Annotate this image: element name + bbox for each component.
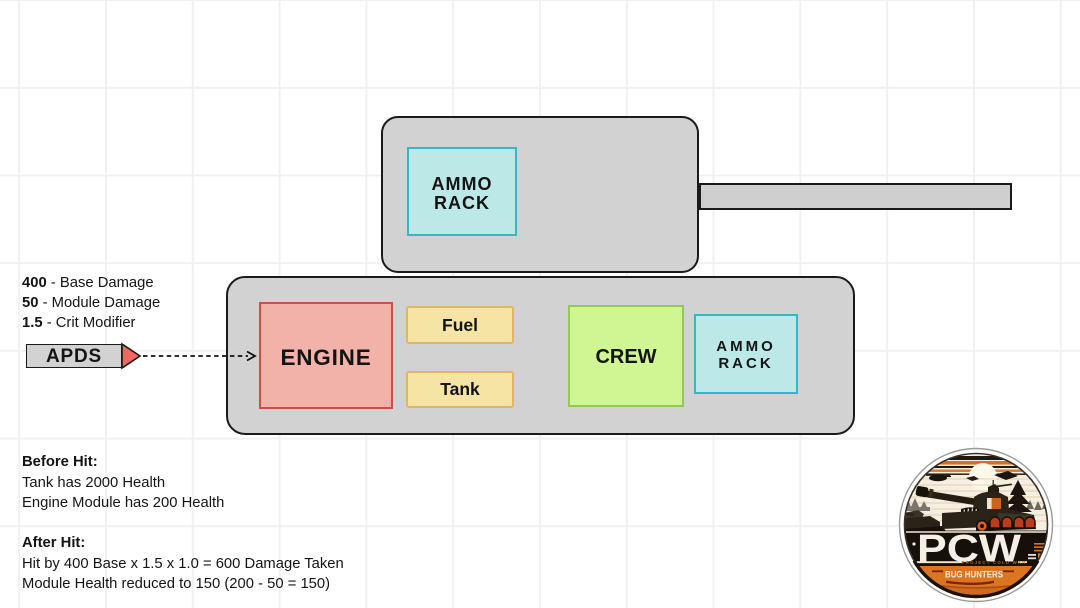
- svg-text:PROJECT COLD WAR: PROJECT COLD WAR: [961, 560, 1026, 565]
- svg-text:BUG HUNTERS: BUG HUNTERS: [945, 570, 1003, 580]
